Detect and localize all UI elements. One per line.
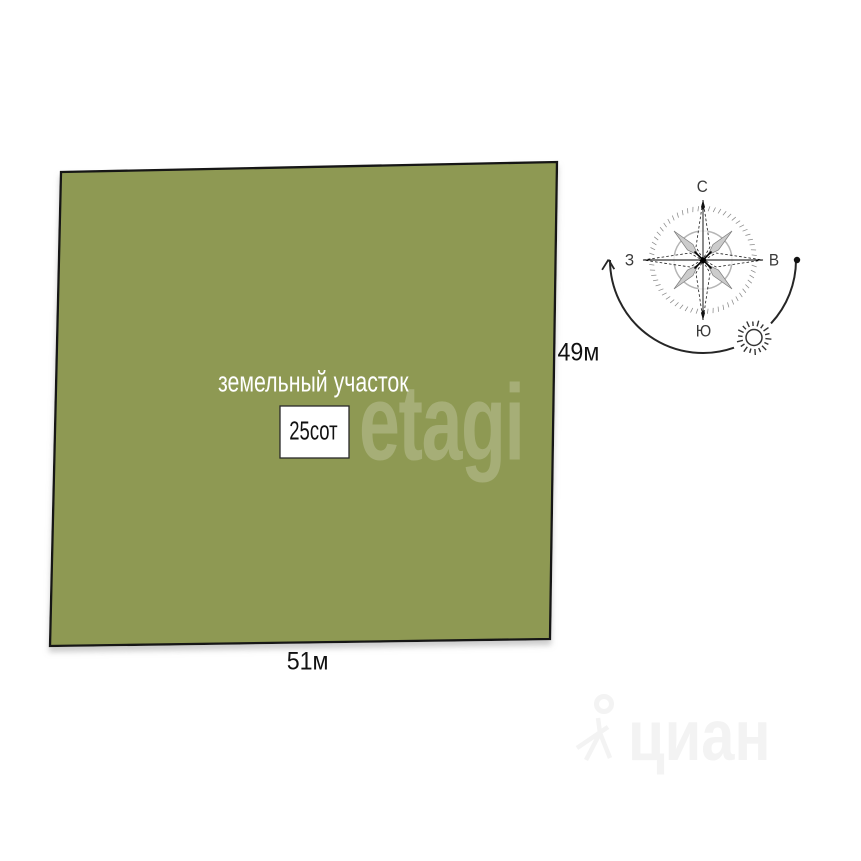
svg-text:25сот: 25сот [289, 416, 337, 445]
svg-text:49м: 49м [558, 339, 600, 367]
svg-text:В: В [769, 251, 779, 270]
svg-text:З: З [625, 251, 634, 270]
svg-text:Ю: Ю [696, 322, 711, 341]
svg-text:циан: циан [628, 696, 770, 775]
svg-text:51м: 51м [287, 648, 329, 676]
svg-text:С: С [697, 177, 708, 196]
svg-text:земельный участок: земельный участок [218, 366, 409, 398]
